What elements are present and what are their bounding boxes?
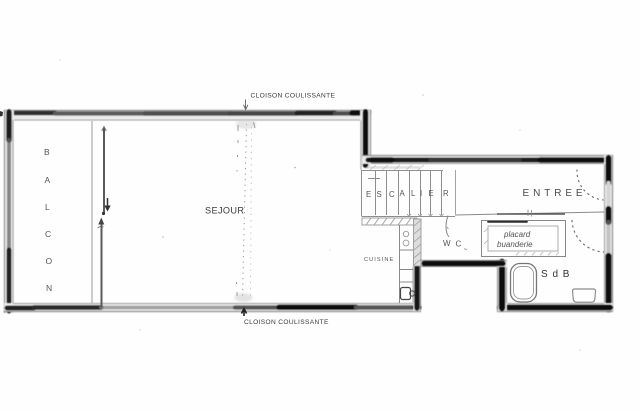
svg-text:O: O bbox=[46, 256, 53, 266]
svg-text:W: W bbox=[443, 239, 451, 248]
svg-text:CLOISON COULISSANTE: CLOISON COULISSANTE bbox=[251, 93, 336, 100]
svg-text:L: L bbox=[411, 189, 416, 198]
svg-text:A: A bbox=[400, 189, 406, 198]
svg-text:SEJOUR: SEJOUR bbox=[205, 206, 244, 216]
svg-text:S: S bbox=[377, 190, 382, 199]
svg-text:I: I bbox=[420, 189, 422, 198]
svg-text:C: C bbox=[45, 229, 51, 239]
svg-text:L: L bbox=[45, 202, 50, 212]
svg-text:placard: placard bbox=[503, 230, 531, 239]
svg-text:ENTREE: ENTREE bbox=[523, 188, 587, 199]
svg-text:R: R bbox=[443, 189, 449, 198]
svg-text:E: E bbox=[366, 190, 371, 199]
svg-text:buanderie: buanderie bbox=[497, 240, 533, 249]
svg-text:CUISINE: CUISINE bbox=[364, 257, 394, 263]
svg-text:N: N bbox=[46, 283, 52, 293]
svg-text:CLOISON COULISSANTE: CLOISON COULISSANTE bbox=[244, 319, 329, 326]
svg-text:E: E bbox=[429, 189, 434, 198]
svg-text:B: B bbox=[44, 147, 50, 157]
svg-text:S d B: S d B bbox=[541, 269, 570, 280]
svg-text:C: C bbox=[389, 190, 395, 199]
svg-text:A: A bbox=[45, 175, 51, 185]
svg-text:C: C bbox=[456, 240, 462, 249]
